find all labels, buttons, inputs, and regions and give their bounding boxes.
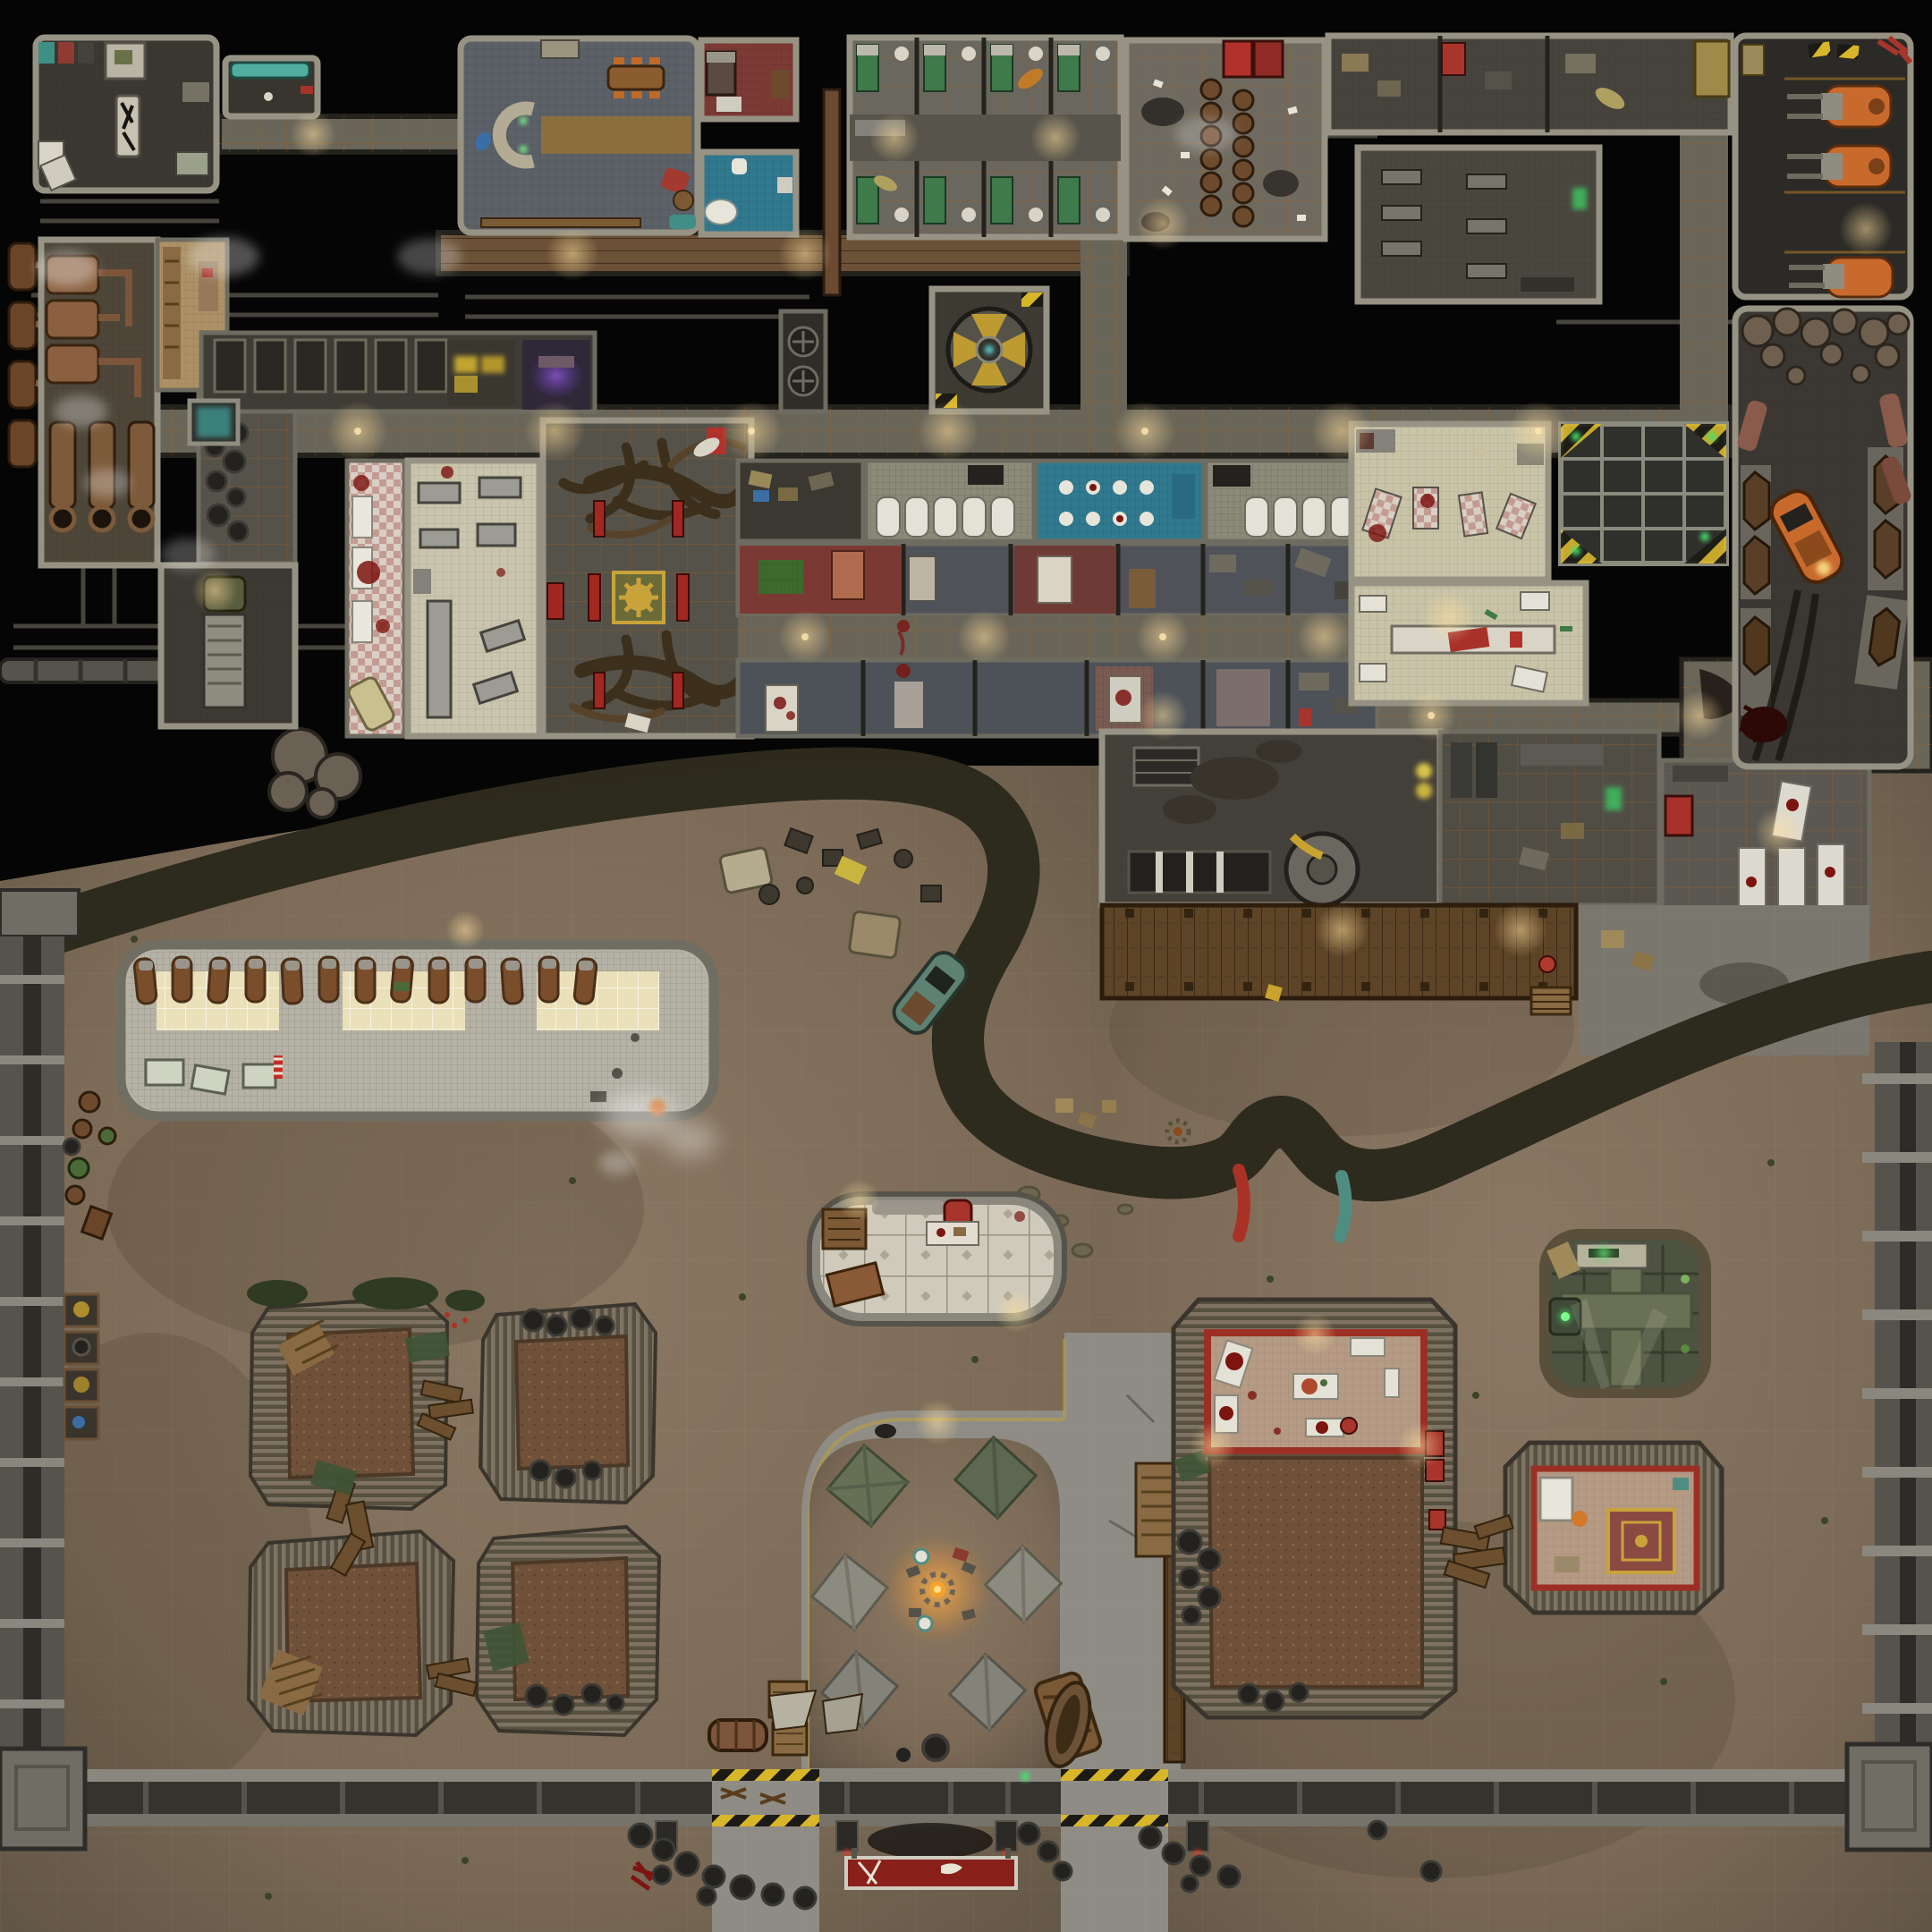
gate-lamp-green <box>1021 1772 1030 1781</box>
hazard-pad <box>1836 44 1859 59</box>
shanty-hut-se <box>477 1527 659 1735</box>
flower-trough <box>538 356 574 368</box>
corridor-vertical-storage <box>1680 132 1728 410</box>
coffins-west <box>1741 465 1771 716</box>
round-table <box>674 191 693 210</box>
bed-white <box>1038 556 1072 603</box>
conference-table <box>608 66 664 89</box>
battle-map-art <box>0 0 1932 1932</box>
jukebox <box>413 569 431 594</box>
bin <box>1213 465 1250 487</box>
blue-toilet-room <box>1036 461 1204 541</box>
cabinet <box>541 40 579 58</box>
vending-machine <box>1224 41 1252 77</box>
dresser <box>716 97 741 112</box>
sun-altar <box>614 572 664 623</box>
green-screen <box>1606 787 1622 810</box>
corner-block-east <box>1847 1744 1932 1850</box>
shelf <box>163 247 181 379</box>
green-bag <box>394 982 410 991</box>
shanty-hut-ne <box>480 1304 656 1503</box>
skylight-grate <box>1561 424 1726 563</box>
rock-pile <box>269 729 360 818</box>
red-barrel <box>1341 1418 1357 1434</box>
junk-store <box>738 461 863 541</box>
storage-rooms <box>1328 36 1731 132</box>
orange-jug <box>1572 1511 1588 1527</box>
gate-west <box>712 1769 819 1826</box>
purple-shrine-nook <box>522 340 590 410</box>
round-chair <box>914 1549 928 1563</box>
patterned-rug <box>1608 1510 1674 1572</box>
bed-frame <box>849 911 901 959</box>
blue-bathroom <box>701 152 796 234</box>
crate <box>176 152 208 175</box>
steam <box>84 469 131 497</box>
red-bedroom <box>701 40 796 119</box>
steam <box>54 395 107 428</box>
locker-gray <box>78 42 94 64</box>
fridge <box>1540 1478 1572 1521</box>
shelf-unit <box>1134 748 1199 785</box>
root-tip-teal <box>1340 1176 1346 1237</box>
cooler <box>1510 631 1522 648</box>
weapons-table <box>116 96 140 157</box>
armory-room <box>36 38 216 191</box>
lounge-nook <box>225 58 318 116</box>
workbench <box>1742 45 1764 75</box>
lockers <box>1673 766 1728 782</box>
kitchen <box>408 461 539 736</box>
campfire <box>885 1538 989 1641</box>
scorch <box>868 1823 993 1859</box>
blue-box <box>753 490 769 502</box>
yellow-crate-nook <box>447 340 515 406</box>
figure-red <box>1539 956 1555 972</box>
corridor-vertical-canteen <box>1080 234 1127 410</box>
toilet <box>732 158 747 174</box>
red-machine <box>1442 43 1465 75</box>
bed <box>832 551 864 599</box>
display-case <box>190 401 238 444</box>
vault-generator <box>1286 834 1358 905</box>
teal-couch <box>231 63 309 78</box>
coffin-crypt <box>1735 309 1913 767</box>
bed <box>909 556 936 601</box>
locker-red <box>58 42 74 64</box>
steam <box>37 250 97 286</box>
shelf <box>1451 742 1472 798</box>
forklift-garage <box>1735 36 1911 297</box>
sink <box>777 177 792 193</box>
butcher-building <box>1174 1300 1455 1717</box>
rug-pink <box>1216 669 1270 726</box>
vending-machine <box>1665 796 1692 835</box>
glow-barrel <box>1416 783 1432 799</box>
round-chair <box>918 1616 932 1631</box>
dorm-block <box>738 461 1377 736</box>
bin <box>968 465 1004 485</box>
red-toolbox <box>301 86 313 94</box>
dark-warehouse <box>1102 732 1440 905</box>
tub <box>705 199 737 225</box>
desk <box>927 1222 979 1245</box>
locker-teal <box>38 42 55 64</box>
shower-room-west <box>866 461 1034 541</box>
vending-machine <box>547 583 563 619</box>
crate <box>1601 930 1624 948</box>
shelf <box>1476 742 1497 798</box>
bedroom-row-upper <box>738 544 1377 615</box>
vending-machine <box>1254 41 1283 77</box>
machine-fan-room <box>781 289 1046 411</box>
bed <box>1129 569 1156 608</box>
green-bunker <box>1545 1234 1706 1393</box>
locker-row <box>1521 744 1603 766</box>
bed <box>894 682 923 728</box>
boiler-room <box>37 240 157 565</box>
gate-east <box>1061 1769 1168 1826</box>
corridor-armory-east <box>219 116 479 152</box>
checker-tile-morgue <box>346 461 404 736</box>
teal-armchair <box>669 215 696 229</box>
overseer-office <box>461 38 698 233</box>
dorm-corridor <box>738 615 1377 660</box>
store-rooms <box>1440 732 1659 905</box>
round-turbine <box>948 309 1030 391</box>
workshop <box>1358 148 1599 301</box>
red-cabinet <box>1299 708 1311 726</box>
corner-block-west <box>0 1749 85 1849</box>
annex-building <box>1505 1443 1722 1613</box>
green-terminal <box>1572 188 1587 209</box>
desk <box>772 70 790 98</box>
glow-barrel <box>1416 763 1432 779</box>
root-shrine-hall <box>543 420 751 736</box>
detention-row <box>201 333 595 411</box>
yellow-shelf <box>1695 41 1729 97</box>
battle-map-canvas[interactable] <box>0 0 1932 1932</box>
bedroom-row-lower <box>738 660 1377 736</box>
striped-counter <box>1129 852 1270 893</box>
root-tip-red <box>1239 1170 1244 1236</box>
couch <box>872 1200 945 1215</box>
truck-bed <box>204 614 245 708</box>
bench <box>481 218 640 227</box>
